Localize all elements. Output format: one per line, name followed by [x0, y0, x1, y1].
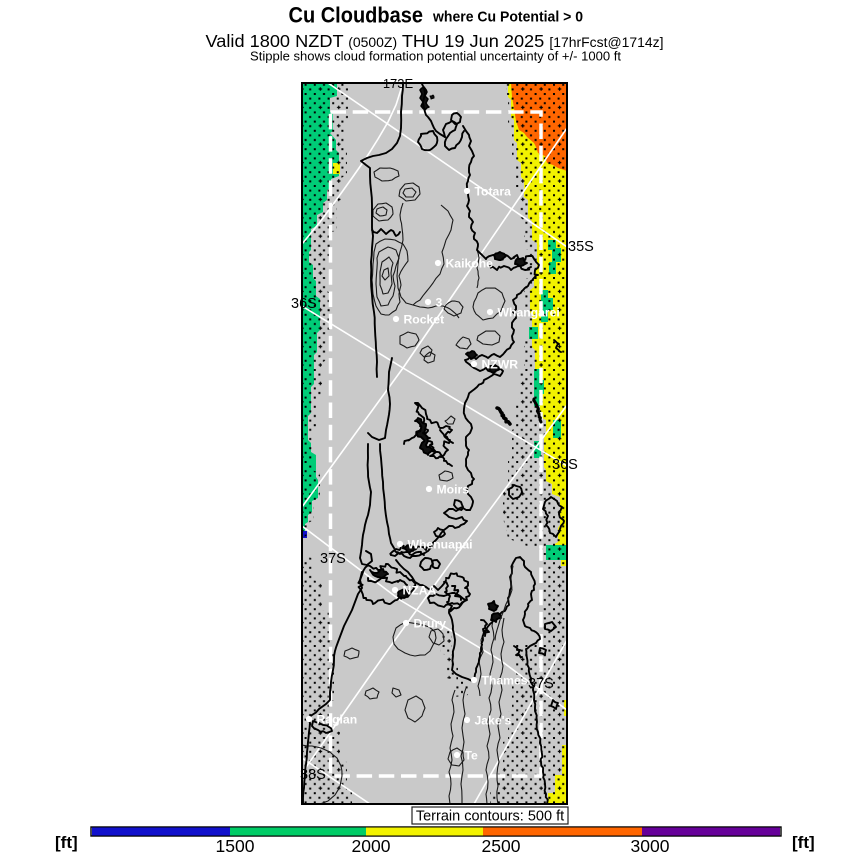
- svg-text:36S: 36S: [552, 457, 578, 473]
- svg-text:35S: 35S: [568, 239, 594, 255]
- svg-text:1500: 1500: [216, 836, 255, 856]
- svg-text:NZWR: NZWR: [482, 358, 519, 372]
- svg-text:Totara: Totara: [475, 185, 512, 199]
- svg-text:37S: 37S: [528, 676, 554, 692]
- svg-text:Stipple shows cloud formation: Stipple shows cloud formation potential …: [250, 49, 621, 64]
- svg-text:173E: 173E: [383, 76, 414, 91]
- svg-text:Jake's: Jake's: [475, 714, 512, 728]
- svg-text:36S: 36S: [291, 296, 317, 312]
- svg-text:Whangarei: Whangarei: [498, 306, 560, 320]
- svg-text:Terrain contours: 500 ft: Terrain contours: 500 ft: [416, 809, 564, 825]
- svg-text:[ft]: [ft]: [55, 833, 78, 852]
- svg-text:Raglan: Raglan: [317, 713, 358, 727]
- svg-text:2000: 2000: [352, 836, 391, 856]
- svg-text:Thames: Thames: [482, 674, 528, 688]
- svg-text:37S: 37S: [320, 551, 346, 567]
- svg-text:Te: Te: [465, 749, 479, 763]
- svg-text:3000: 3000: [631, 836, 670, 856]
- svg-text:Rocket: Rocket: [404, 313, 445, 327]
- svg-text:Cu Cloudbase: Cu Cloudbase: [289, 3, 424, 28]
- svg-text:Drury: Drury: [414, 617, 447, 631]
- svg-text:3: 3: [436, 296, 443, 310]
- svg-text:[ft]: [ft]: [792, 833, 815, 852]
- svg-text:Kaikohe: Kaikohe: [446, 257, 494, 271]
- svg-text:2500: 2500: [482, 836, 521, 856]
- svg-text:38S: 38S: [300, 767, 326, 783]
- svg-text:where Cu Potential > 0: where Cu Potential > 0: [432, 9, 583, 26]
- svg-text:NZAA: NZAA: [403, 584, 437, 598]
- svg-text:Whenuapai: Whenuapai: [408, 538, 473, 552]
- svg-text:Moirs: Moirs: [437, 483, 470, 497]
